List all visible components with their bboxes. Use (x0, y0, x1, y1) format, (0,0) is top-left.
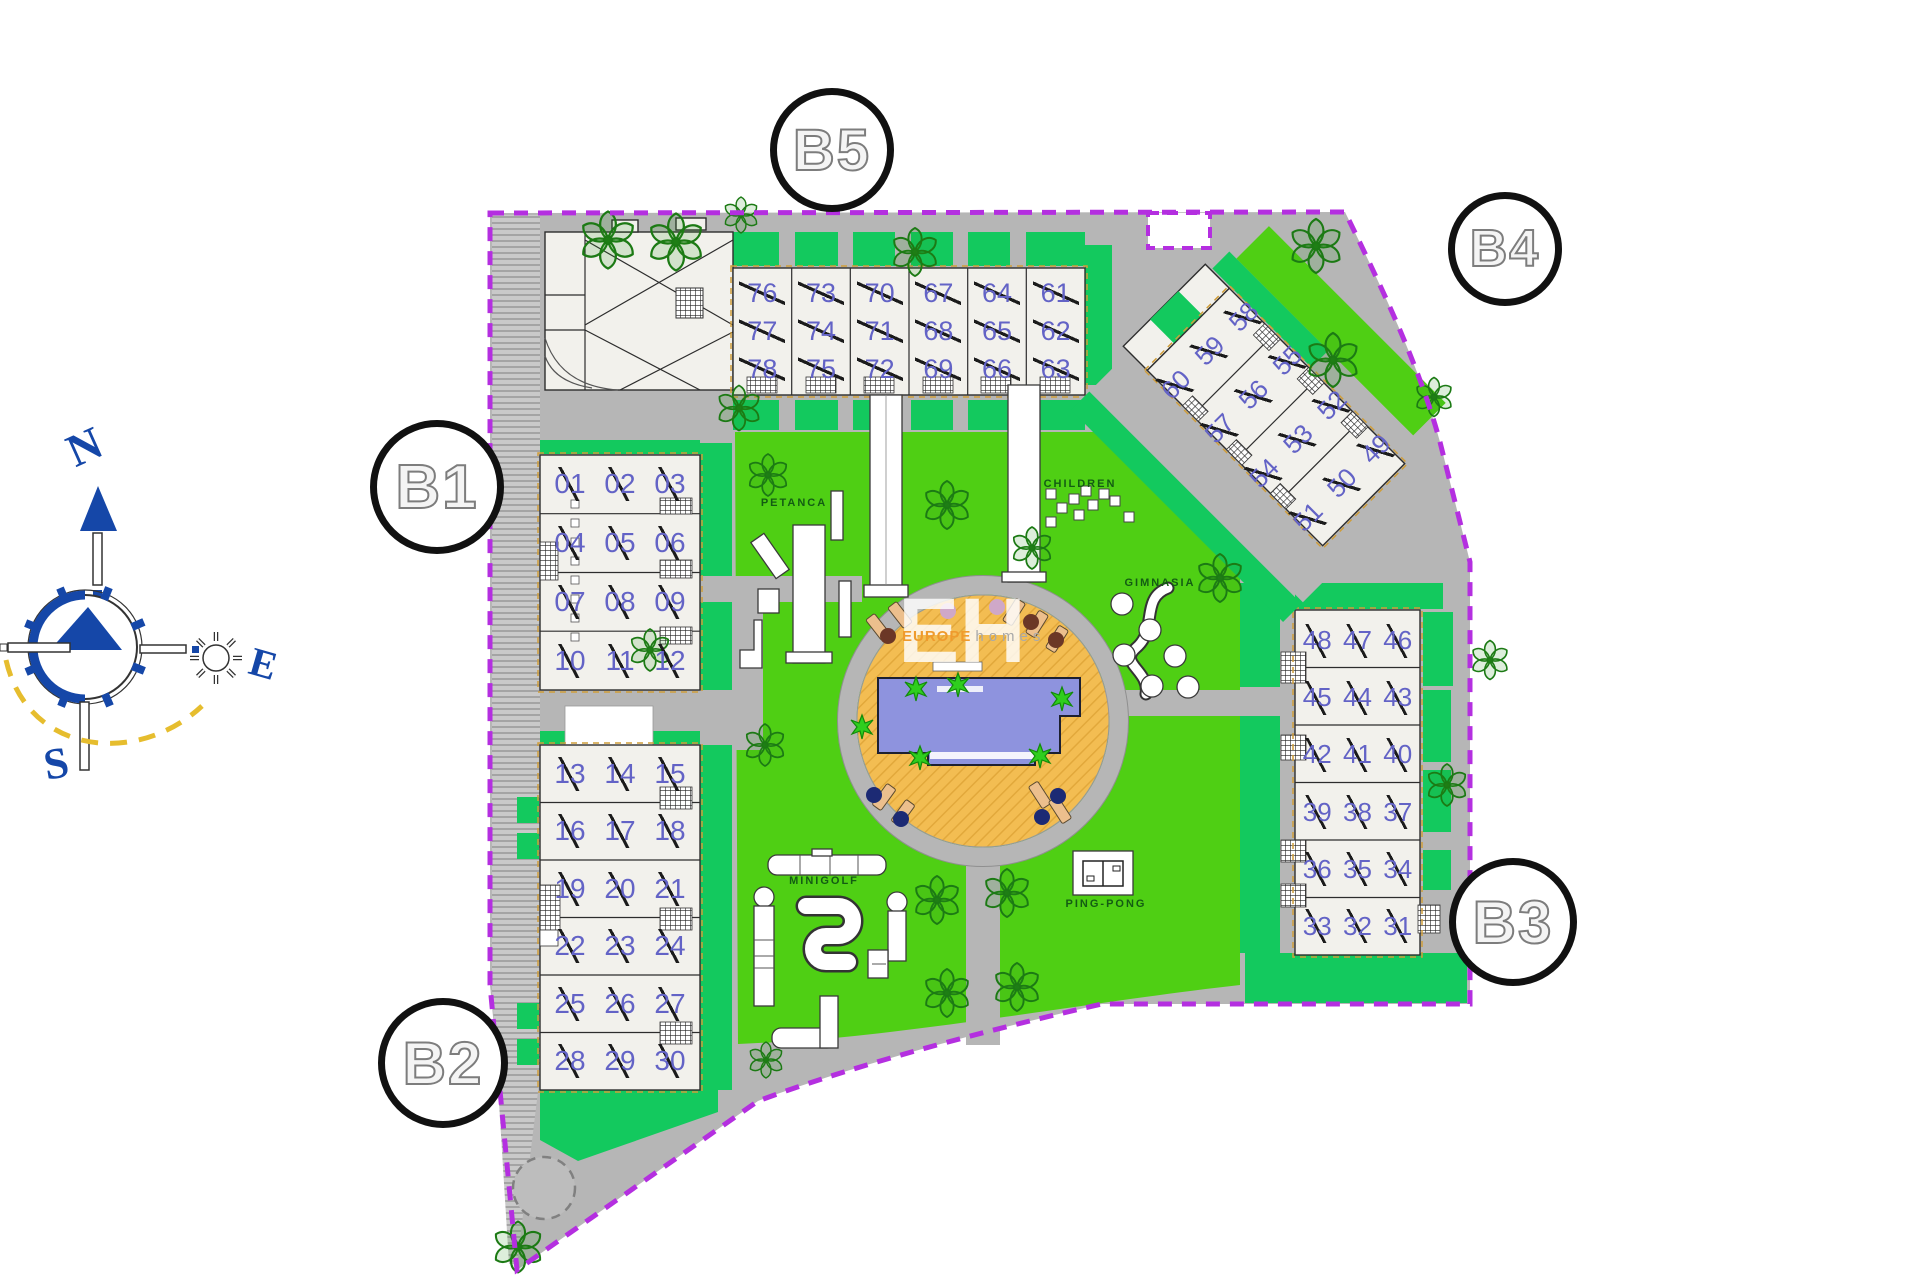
block-label-b2-text: B2 (403, 1029, 484, 1098)
amenity-label-minigolf: MINIGOLF (789, 875, 859, 887)
ping-pong-table (1073, 851, 1133, 895)
entrance-building (545, 218, 733, 390)
sidewalk-hatch (492, 215, 540, 1264)
reserved-plot-dashed (1148, 213, 1210, 248)
block-label-b3: B3 (1449, 858, 1577, 986)
building-b1 (538, 453, 702, 692)
pool-area (838, 576, 1129, 867)
amenity-label-petanca: PETANCA (761, 497, 827, 509)
building-b2 (538, 743, 702, 1092)
roundabout-dashed (513, 1157, 575, 1219)
block-label-b4: B4 (1448, 192, 1562, 306)
block-label-b5-text: B5 (793, 117, 871, 184)
compass-rose (0, 486, 242, 770)
amenity-label-pingpong: PING-PONG (1066, 898, 1147, 910)
block-label-b4-text: B4 (1470, 219, 1540, 279)
amenity-label-children: CHILDREN (1044, 478, 1117, 490)
building-b3 (1281, 608, 1440, 957)
block-label-b2: B2 (378, 998, 508, 1128)
sun-icon (203, 645, 229, 671)
amenity-label-gimnasia: GIMNASIA (1125, 577, 1196, 589)
site-plan-page: N E S B5 B4 B1 B2 B3 7677787374757071726… (0, 0, 1920, 1280)
site-plan-graphic (0, 0, 1920, 1280)
building-b5 (731, 266, 1087, 397)
block-label-b1: B1 (370, 420, 504, 554)
north-arrow-icon (80, 486, 117, 531)
block-label-b1-text: B1 (395, 452, 478, 523)
block-label-b5: B5 (770, 88, 894, 212)
pedestrian-crossing (565, 706, 653, 746)
block-label-b3-text: B3 (1473, 888, 1554, 957)
